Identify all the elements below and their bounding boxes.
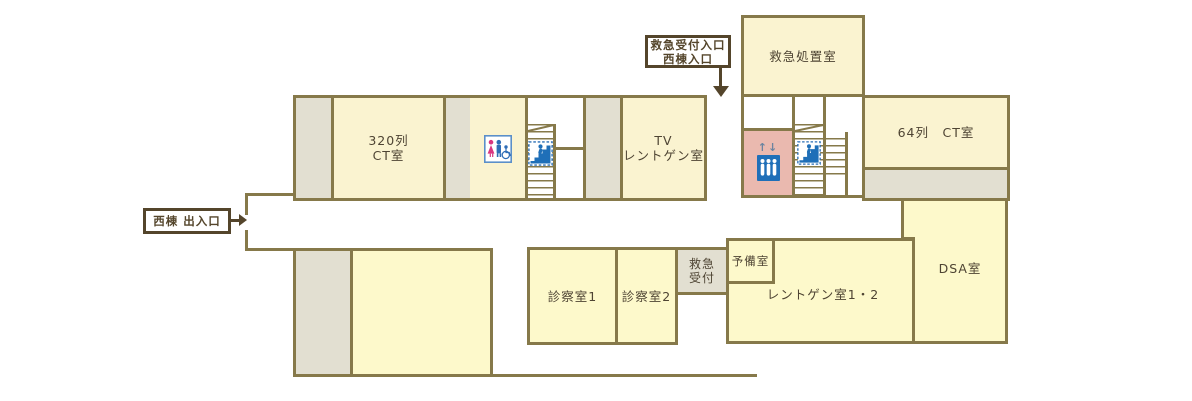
stairs-icon [797,141,821,165]
right-arrow-head-icon [239,214,247,226]
floor-plan: 320列 CT室 [0,0,1192,401]
block-upper-left: 320列 CT室 [293,95,556,201]
room-emergency-treatment-label: 救急処置室 [769,49,837,64]
wall-segment [845,132,848,198]
elevator-hall: ↑↓ [744,128,792,196]
room-ct64-label: 64列 CT室 [898,125,975,140]
elevator-arrows-icon: ↑↓ [744,141,792,154]
toilet-icon [484,135,512,163]
room-dsa-label: DSA室 [910,261,1010,276]
service-strip [446,98,470,198]
room-exam1-label: 診察室1 [548,289,597,304]
wall-segment [556,198,586,201]
block-ct64: 64列 CT室 [862,95,1010,201]
room-tv-xray: TV レントゲン室 [623,98,704,198]
room-tv-xray-label2: レントゲン室 [623,148,704,163]
room-dsa-upper [901,201,1008,240]
down-arrow-head-icon [713,86,729,97]
right-arrow-icon [231,219,239,222]
room-dsa-lower [915,240,1008,344]
wall-segment [245,248,296,251]
block-exam: 診察室1 診察室2 [527,247,678,345]
stairs-icon [528,141,553,166]
room-emergency-treatment: 救急処置室 [741,15,865,97]
block-tv-xray: TV レントゲン室 [583,95,707,201]
service-strip [586,98,620,198]
room-ct64: 64列 CT室 [865,98,1007,167]
room-ct320-label2: CT室 [373,148,405,163]
wall-segment [245,193,296,196]
room-emergency-reception-label2: 受付 [689,271,715,285]
block-xray12: 予備室 レントゲン室1・2 [726,238,915,344]
wall-segment [553,147,586,150]
stair-landing [826,138,845,178]
room-reserve-label: 予備室 [729,254,772,269]
wall-segment [556,95,586,98]
room-exam2-label: 診察室2 [622,289,671,304]
block-lower-left [293,248,493,374]
emergency-entrance-text: 救急受付入口 [651,38,726,52]
wall-segment [553,124,556,201]
emergency-entrance-label: 救急受付入口 西棟入口 [645,35,731,68]
west-wing-exit-text: 西棟 出入口 [153,214,221,228]
room-xray12-label: レントゲン室1・2 [763,287,883,302]
service-strip [296,251,350,374]
room-ct320-label: 320列 [368,133,408,148]
room-tv-xray-label: TV [654,133,672,148]
wall-segment [729,281,775,284]
room-emergency-reception-label: 救急 [689,257,715,271]
wall-segment [741,195,865,198]
room-exam2: 診察室2 [618,250,675,342]
service-strip [865,170,1007,198]
room-ct320: 320列 CT室 [334,98,443,198]
wall-segment [772,241,775,284]
room-exam1: 診察室1 [530,250,615,342]
room-unlabeled [353,251,490,374]
wall-segment [245,193,248,215]
emergency-entrance-text2: 西棟入口 [663,52,713,66]
room-emergency-reception: 救急 受付 [678,247,726,295]
down-arrow-icon [719,68,722,86]
service-strip [296,98,331,198]
wall-outer-south [293,374,757,377]
elevator-icon [757,155,780,181]
west-wing-exit-label: 西棟 出入口 [143,208,231,234]
